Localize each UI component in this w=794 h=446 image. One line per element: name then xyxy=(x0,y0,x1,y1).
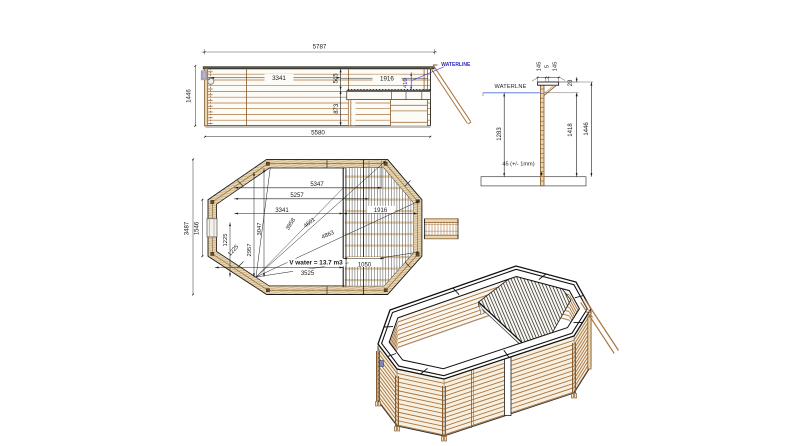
svg-text:45 (+/- 1mm): 45 (+/- 1mm) xyxy=(502,161,534,167)
svg-text:2957: 2957 xyxy=(247,244,253,257)
svg-text:145: 145 xyxy=(536,62,542,72)
svg-text:WATERLNE: WATERLNE xyxy=(494,84,526,90)
svg-text:WATERLINE: WATERLINE xyxy=(441,62,471,68)
svg-text:3341: 3341 xyxy=(272,75,286,82)
svg-text:410: 410 xyxy=(403,78,409,88)
svg-text:3341: 3341 xyxy=(275,208,289,214)
svg-text:1225: 1225 xyxy=(223,234,229,247)
svg-text:1283: 1283 xyxy=(497,127,503,141)
svg-text:1546: 1546 xyxy=(194,221,200,235)
svg-text:5580: 5580 xyxy=(311,130,325,137)
svg-text:1916: 1916 xyxy=(380,76,394,83)
svg-text:873: 873 xyxy=(334,103,340,114)
svg-text:1050: 1050 xyxy=(358,262,372,268)
svg-text:1446: 1446 xyxy=(584,122,590,136)
svg-text:3525: 3525 xyxy=(301,271,315,277)
svg-text:5347: 5347 xyxy=(310,182,324,188)
svg-text:145: 145 xyxy=(553,62,559,72)
svg-text:1418: 1418 xyxy=(568,123,574,137)
svg-text:5257: 5257 xyxy=(290,193,304,199)
svg-text:V water = 13.7 m3: V water = 13.7 m3 xyxy=(289,260,343,267)
svg-text:5: 5 xyxy=(545,65,551,68)
svg-text:1916: 1916 xyxy=(374,208,388,214)
svg-text:28: 28 xyxy=(568,79,574,86)
svg-text:545: 545 xyxy=(334,73,340,84)
svg-text:1446: 1446 xyxy=(185,89,192,103)
svg-text:5787: 5787 xyxy=(313,44,327,51)
svg-text:3487: 3487 xyxy=(185,221,191,235)
